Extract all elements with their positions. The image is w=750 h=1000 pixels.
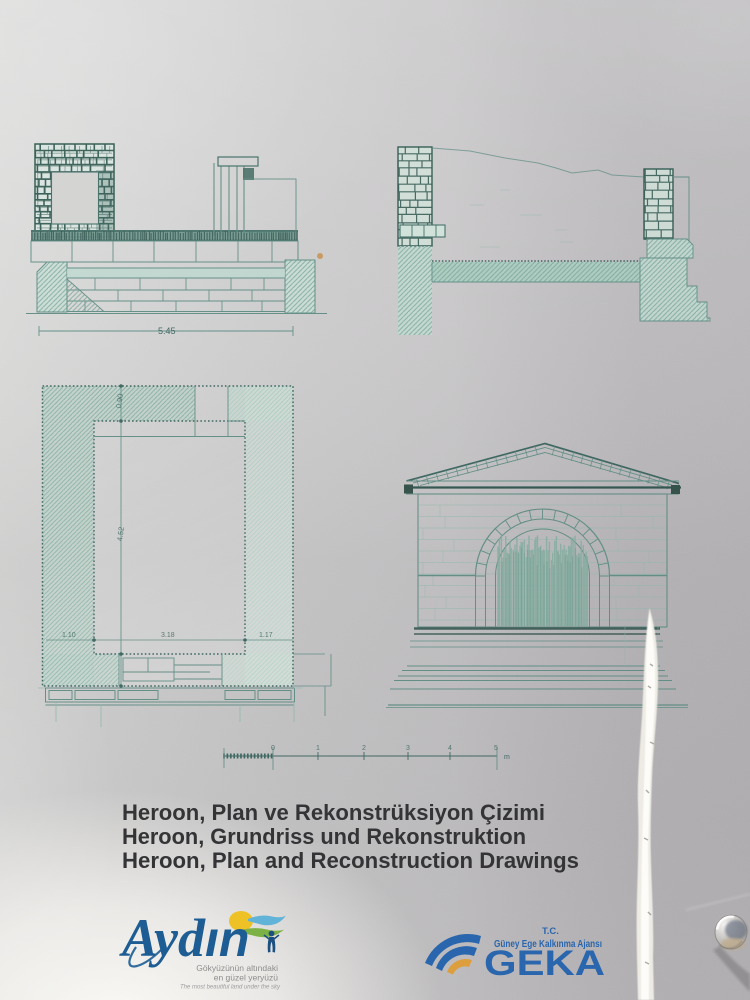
svg-text:Gökyüzünün altındaki: Gökyüzünün altındaki [196, 963, 278, 973]
svg-text:2: 2 [362, 745, 366, 752]
svg-text:5: 5 [494, 745, 498, 752]
svg-text:T.C.: T.C. [542, 926, 559, 937]
svg-text:1: 1 [316, 745, 320, 752]
svg-text:1.10: 1.10 [62, 632, 76, 639]
svg-text:GEKA: GEKA [484, 944, 605, 983]
svg-text:5.45: 5.45 [158, 326, 176, 336]
svg-text:Heroon, Plan and Reconstructio: Heroon, Plan and Reconstruction Drawings [122, 848, 579, 873]
svg-text:4: 4 [448, 745, 452, 752]
svg-text:0: 0 [271, 745, 275, 752]
svg-text:Aydın: Aydın [119, 908, 249, 968]
svg-text:Heroon, Plan ve Rekonstrüksiyo: Heroon, Plan ve Rekonstrüksiyon Çizimi [122, 800, 545, 825]
svg-text:m: m [504, 754, 510, 761]
svg-text:1.17: 1.17 [259, 632, 273, 639]
svg-text:Heroon, Grundriss und Rekonstr: Heroon, Grundriss und Rekonstruktion [122, 824, 526, 849]
svg-text:The most beautiful land under: The most beautiful land under the sky [180, 985, 281, 991]
svg-text:3.18: 3.18 [161, 632, 175, 639]
svg-text:3: 3 [406, 745, 410, 752]
svg-text:en güzel yeryüzü: en güzel yeryüzü [214, 973, 279, 983]
